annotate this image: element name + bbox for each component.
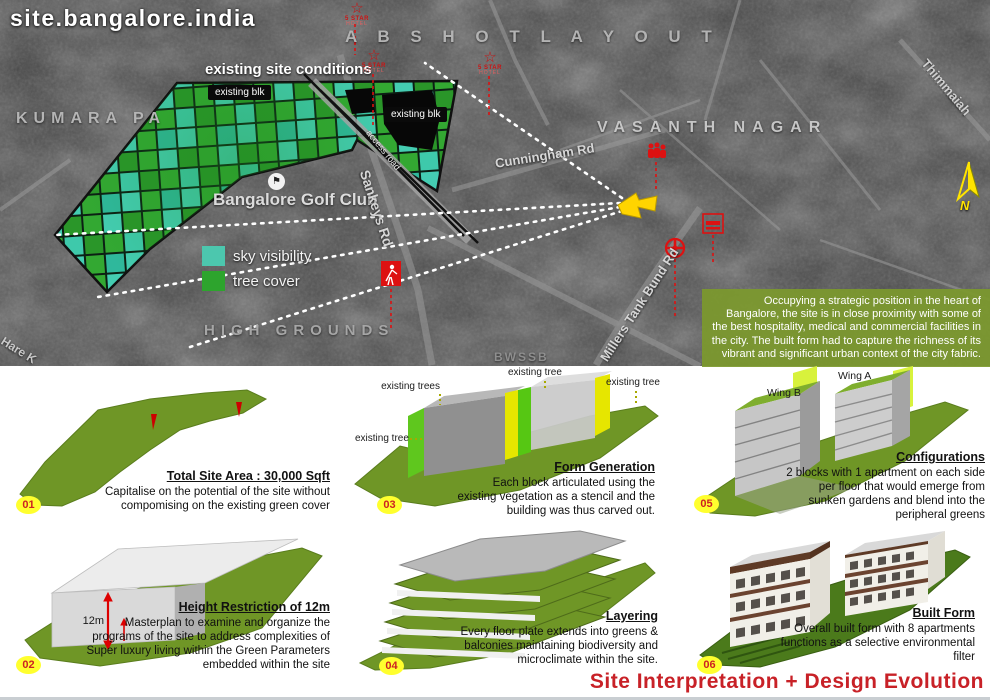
caption-heading: Configurations (783, 450, 985, 464)
map-legend: sky visibility tree cover (202, 246, 311, 296)
existing-blk-label-1: existing blk (208, 85, 271, 100)
north-label: N (960, 198, 969, 213)
diagram-number-badge: 03 (377, 496, 402, 514)
hotel-marker: ☆ 5 STAR HOTEL (357, 48, 391, 74)
building-right (845, 531, 945, 616)
caption-heading: Form Generation (455, 460, 655, 474)
hotel-marker-sublabel: HOTEL (340, 22, 374, 27)
tree-label: existing tree (508, 367, 562, 378)
caption-04: Layering Every floor plate extends into … (456, 609, 658, 667)
page-title: site.bangalore.india (10, 5, 256, 32)
caption-heading: Height Restriction of 12m (78, 600, 330, 614)
caption-body: 2 blocks with 1 apartment on each side p… (783, 466, 985, 522)
legend-tree-label: tree cover (233, 273, 300, 290)
golfer-icon (381, 261, 401, 286)
overlay-title: existing site conditions (205, 61, 372, 78)
hotel-marker: ☆ 5 STAR HOTEL (473, 50, 507, 76)
caption-heading: Built Form (779, 606, 975, 620)
site-description: Occupying a strategic position in the he… (702, 289, 990, 367)
area-label-bwssb: BWSSB (494, 350, 549, 364)
legend-sky-label: sky visibility (233, 248, 311, 265)
diagram-number-badge: 01 (16, 496, 41, 514)
caption-heading: Total Site Area : 30,000 Sqft (80, 469, 330, 483)
area-label-abshot-layout: A B S H O T L A Y O U T (345, 27, 720, 47)
caption-01: Total Site Area : 30,000 Sqft Capitalise… (80, 469, 330, 513)
area-label-kumara-park: KUMARA PA (16, 110, 166, 128)
caption-03: Form Generation Each block articulated u… (455, 460, 655, 518)
star-icon: ☆ (357, 48, 391, 63)
golf-club-icon: ⚑ (268, 173, 285, 190)
caption-06: Built Form Overall built form with 8 apa… (779, 606, 975, 664)
diagram-number-badge: 04 (379, 657, 404, 675)
caption-body: Each block articulated using the existin… (455, 476, 655, 518)
tree-slab-yellow (505, 390, 518, 460)
star-icon: ☆ (340, 1, 374, 16)
wing-b-label: Wing B (767, 387, 801, 399)
caption-body: Masterplan to examine and organize the p… (78, 616, 330, 672)
tree-slab (408, 408, 424, 478)
diagram-number-badge: 02 (16, 656, 41, 674)
tree-cover-swatch (202, 271, 225, 291)
golf-club-label: Bangalore Golf Club (213, 190, 377, 210)
existing-blk-label-2: existing blk (384, 107, 447, 122)
caption-body: Capitalise on the potential of the site … (80, 485, 330, 513)
presentation-board: site.bangalore.india A B S H O T L A Y O… (0, 0, 990, 700)
legend-row-tree: tree cover (202, 271, 311, 291)
legend-row-sky: sky visibility (202, 246, 311, 266)
sky-visibility-swatch (202, 246, 225, 266)
hotel-marker-sublabel: HOTEL (473, 71, 507, 76)
area-label-vasanth-nagar: VASANTH NAGAR (597, 119, 827, 137)
tree-slab-green (518, 387, 531, 456)
tree-label: existing tree (355, 433, 409, 444)
star-icon: ☆ (473, 50, 507, 65)
hotel-marker-sublabel: HOTEL (357, 69, 391, 74)
caption-body: Every floor plate extends into greens & … (456, 625, 658, 667)
block-front (531, 380, 595, 450)
caption-02: Height Restriction of 12m Masterplan to … (78, 600, 330, 672)
tree-label: existing trees (606, 377, 660, 388)
tree-label: existing trees (381, 381, 440, 392)
hotel-marker: ☆ 5 STAR HOTEL (340, 1, 374, 27)
area-label-high-grounds: HIGH GROUNDS (204, 322, 394, 339)
diagram-number-badge: 05 (694, 495, 719, 513)
caption-heading: Layering (456, 609, 658, 623)
site-map: site.bangalore.india A B S H O T L A Y O… (0, 0, 990, 366)
board-footer-title: Site Interpretation + Design Evolution (590, 670, 984, 694)
caption-05: Configurations 2 blocks with 1 apartment… (783, 450, 985, 522)
people-icon (648, 143, 666, 159)
wing-a-label: Wing A (838, 370, 871, 382)
caption-body: Overall built form with 8 apartments fun… (779, 622, 975, 664)
